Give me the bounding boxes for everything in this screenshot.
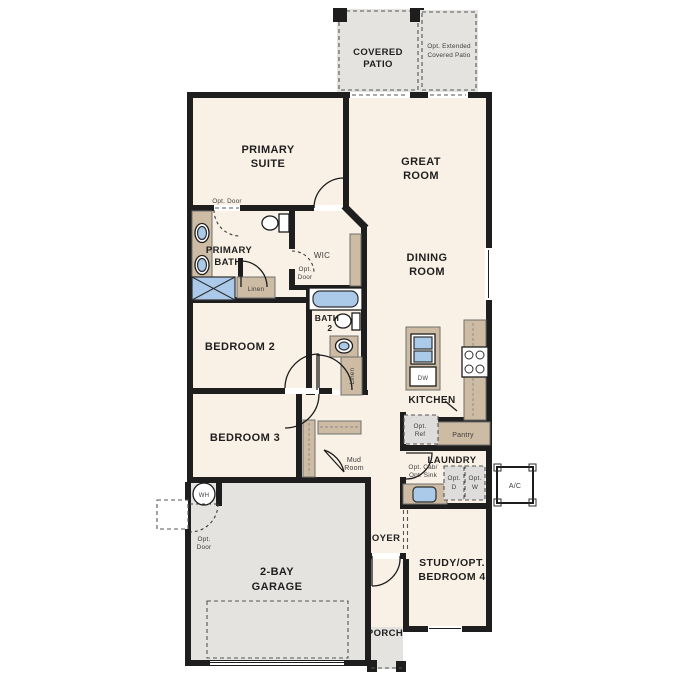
opt-ref-label: Opt. xyxy=(414,423,427,430)
laundry-sink xyxy=(413,487,436,502)
opt-door-box xyxy=(157,500,188,529)
great-room-label: ROOM xyxy=(403,170,439,182)
floor-plan-svg: COVERED PATIO Opt. Extended Covered Pati… xyxy=(0,0,687,687)
opt-door-label: Opt. xyxy=(198,536,211,543)
wall-segment xyxy=(289,209,295,249)
wh-label: WH xyxy=(199,493,209,499)
bedroom2-label: BEDROOM 2 xyxy=(205,341,275,353)
floor-plan: COVERED PATIO Opt. Extended Covered Pati… xyxy=(0,0,687,687)
wall-segment xyxy=(216,480,222,506)
bathtub-basin xyxy=(313,291,358,307)
dining-room-label: ROOM xyxy=(409,266,445,278)
porch-post xyxy=(396,661,406,672)
study-label: STUDY/OPT. xyxy=(419,557,485,569)
wic-label: WIC xyxy=(314,251,330,260)
toilet-tank xyxy=(279,214,289,232)
bath2-label: 2 xyxy=(327,323,332,333)
opt-cab-sink-label: Opt. Sink xyxy=(409,472,438,479)
window-pane xyxy=(488,250,489,298)
opt-ref-label: Ref xyxy=(415,431,426,438)
wall-segment xyxy=(486,509,492,632)
mud-room-label: Mud xyxy=(347,457,361,464)
covered-patio-label: PATIO xyxy=(363,59,393,70)
primary-suite-label: PRIMARY xyxy=(241,144,294,156)
opt-washer-label: W xyxy=(472,484,479,491)
opt-extended-patio-label: Covered Patio xyxy=(427,52,470,59)
wall-segment xyxy=(403,559,409,632)
opt-door-label: Opt. xyxy=(299,266,312,273)
garage-label: 2-BAY xyxy=(260,566,294,578)
great-room-label: GREAT xyxy=(401,156,441,168)
mud-room-label: Room xyxy=(344,465,363,472)
opt-washer-label: Opt. xyxy=(469,475,482,482)
study-label: BEDROOM 4 xyxy=(418,571,485,583)
dw-label: DW xyxy=(418,376,429,382)
porch-post xyxy=(367,660,377,672)
covered-patio-label: COVERED xyxy=(353,47,403,58)
bath2-label: BATH xyxy=(315,313,340,323)
wall-segment xyxy=(296,394,302,477)
front-door-opening xyxy=(372,553,400,559)
ac-label: A/C xyxy=(509,483,521,490)
sink-basin xyxy=(198,259,207,272)
wall-segment xyxy=(361,226,367,290)
mudroom-bench xyxy=(318,421,361,434)
garage-label: GARAGE xyxy=(252,581,303,593)
dining-room-label: DINING xyxy=(407,252,448,264)
opt-dryer-box xyxy=(444,466,464,500)
door-opening xyxy=(285,388,319,394)
island-sink-basin xyxy=(414,351,432,362)
garage-door-line xyxy=(210,662,344,663)
opt-door-label: Opt. Door xyxy=(212,198,242,205)
foyer-label: FOYER xyxy=(366,533,401,544)
door-opening xyxy=(314,205,344,211)
opt-washer-box xyxy=(465,466,485,500)
linen-label: Linen xyxy=(349,367,356,384)
opt-door-label: Door xyxy=(197,544,212,551)
linen-label: Linen xyxy=(248,286,265,293)
pantry-label: Pantry xyxy=(452,432,474,439)
island-sink-basin xyxy=(414,337,432,349)
wall-segment xyxy=(400,445,492,451)
kitchen-label: KITCHEN xyxy=(408,395,455,406)
bedroom3-label: BEDROOM 3 xyxy=(210,432,280,444)
sink-basin xyxy=(198,227,207,240)
primary-suite-label: SUITE xyxy=(251,158,285,170)
wic-shelf xyxy=(350,234,361,286)
opt-door-label: Door xyxy=(298,274,313,281)
opt-dryer-label: Opt. xyxy=(448,475,461,482)
porch-label: PORCH xyxy=(367,628,403,639)
window-pane xyxy=(429,628,461,629)
opt-extended-patio-label: Opt. Extended xyxy=(427,43,471,50)
opt-extended-patio-area xyxy=(420,10,478,92)
sink-basin xyxy=(339,342,349,350)
stove xyxy=(462,347,488,377)
primary-bath-label: PRIMARY xyxy=(206,245,253,256)
wall-segment xyxy=(187,477,371,483)
primary-bath-label: BATH xyxy=(214,257,241,268)
patio-post xyxy=(333,8,347,22)
toilet-bowl xyxy=(262,216,278,230)
opt-dryer-label: D xyxy=(452,484,457,491)
toilet-tank xyxy=(352,313,360,330)
opt-cab-sink-label: Opt. Cab/ xyxy=(408,464,437,471)
